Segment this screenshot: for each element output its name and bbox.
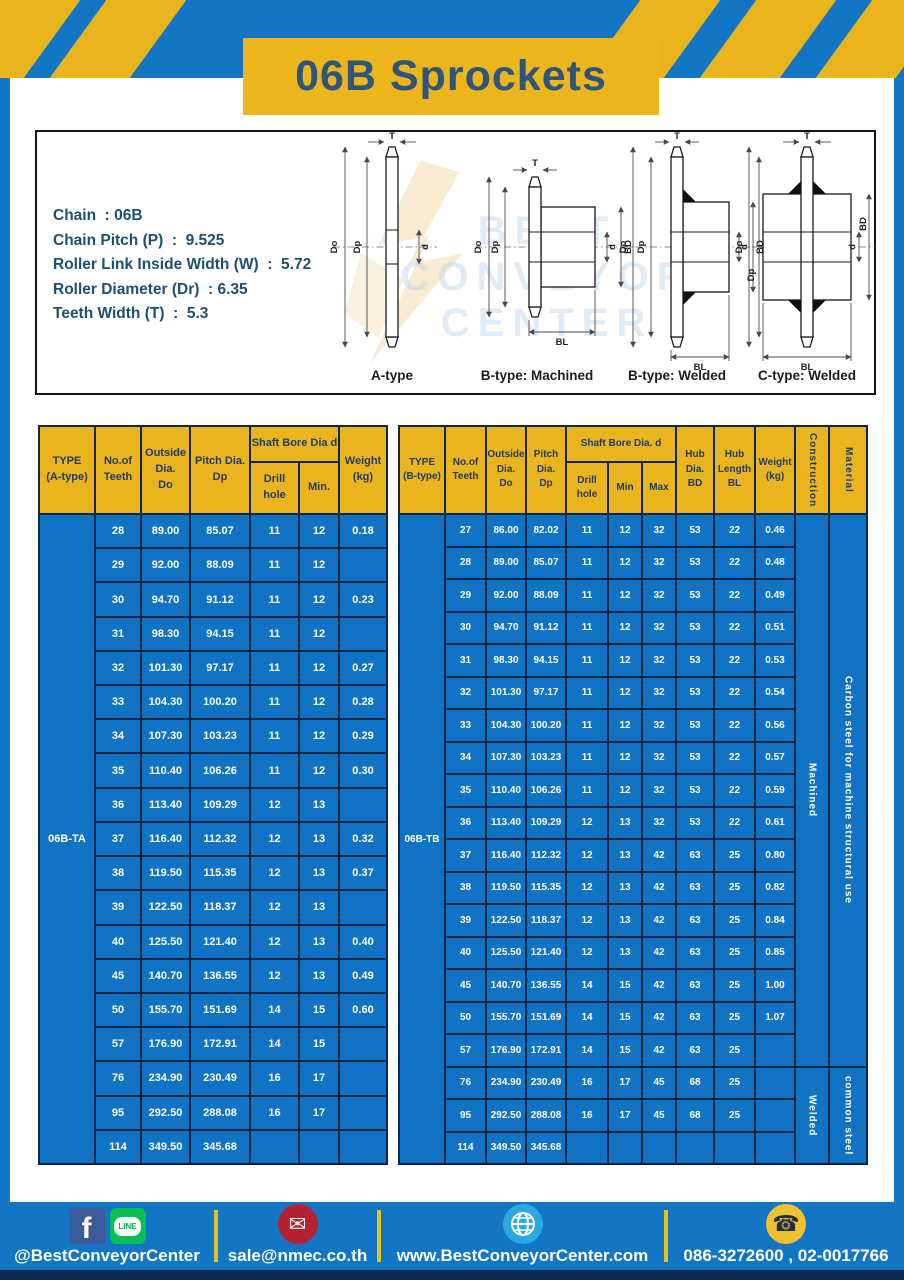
table-cell: 140.70 <box>142 960 189 992</box>
table-cell: 32 <box>643 710 675 741</box>
table-cell: 94.15 <box>191 618 249 650</box>
table-cell: 121.40 <box>527 938 565 969</box>
table-cell: 0.84 <box>756 905 794 936</box>
table-cell <box>340 1131 386 1163</box>
table-cell <box>340 1028 386 1060</box>
table-cell: 30 <box>446 613 485 644</box>
table-cell <box>340 618 386 650</box>
table-cell: 94.70 <box>487 613 525 644</box>
table-cell: 12 <box>609 710 641 741</box>
table-cell: 12 <box>251 789 298 821</box>
table-cell: 42 <box>643 1035 675 1066</box>
table-cell: 40 <box>446 938 485 969</box>
footer-phone-section[interactable]: ☎ 086-3272600 , 02-0017766 <box>668 1202 904 1270</box>
table-cell: 35 <box>96 754 140 786</box>
table-cell: 45 <box>446 970 485 1001</box>
table-cell: 15 <box>300 1028 338 1060</box>
table-cell: 14 <box>251 1028 298 1060</box>
column-header-outside-dia: Outside Dia. Do <box>487 427 525 513</box>
table-cell: 76 <box>446 1068 485 1099</box>
table-cell: 0.27 <box>340 652 386 684</box>
table-cell: 94.70 <box>142 583 189 615</box>
globe-icon[interactable] <box>503 1204 543 1244</box>
table-cell: 16 <box>251 1062 298 1094</box>
table-cell: 110.40 <box>487 775 525 806</box>
column-header-min: Min <box>609 463 641 513</box>
diagram-panel: BEST CONVEYOR CENTER Chain : 06B Chain P… <box>35 130 876 395</box>
table-cell: 45 <box>643 1100 675 1131</box>
column-header-pitch-dia: Pitch Dia. Dp <box>191 427 249 513</box>
table-cell: 63 <box>677 1035 713 1066</box>
dim-label-d: d <box>607 244 618 250</box>
table-cell: 11 <box>251 720 298 752</box>
table-cell: 11 <box>567 743 607 774</box>
table-cell: 53 <box>677 548 713 579</box>
table-cell: 0.46 <box>756 515 794 546</box>
table-cell: 0.53 <box>756 645 794 676</box>
table-cell: 22 <box>715 743 754 774</box>
table-cell: 0.37 <box>340 857 386 889</box>
table-cell: 101.30 <box>487 678 525 709</box>
social-handle-link[interactable]: @BestConveyorCenter <box>14 1246 200 1266</box>
table-cell: 11 <box>567 515 607 546</box>
globe-glyph <box>510 1211 536 1237</box>
table-cell: 11 <box>251 583 298 615</box>
table-cell: 12 <box>300 549 338 581</box>
table-cell: 13 <box>300 789 338 821</box>
table-cell: 11 <box>251 549 298 581</box>
table-cell: 349.50 <box>487 1133 525 1164</box>
table-cell: 32 <box>446 678 485 709</box>
table-cell: 32 <box>643 515 675 546</box>
column-header-hub-dia: Hub Dia. BD <box>677 427 713 513</box>
email-icon[interactable]: ✉ <box>278 1204 318 1244</box>
table-cell: 53 <box>677 515 713 546</box>
table-cell: 32 <box>643 743 675 774</box>
table-cell: 88.09 <box>527 580 565 611</box>
table-cell: 57 <box>96 1028 140 1060</box>
table-cell: 13 <box>300 891 338 923</box>
table-cell: 0.30 <box>340 754 386 786</box>
table-cell: 35 <box>446 775 485 806</box>
dim-label-t: T <box>532 158 538 169</box>
column-header-weight: Weight (kg) <box>756 427 794 513</box>
column-header-teeth: No.of Teeth <box>96 427 140 513</box>
table-cell <box>756 1133 794 1164</box>
table-cell: 14 <box>567 1003 607 1034</box>
column-header-type: TYPE (A-type) <box>40 427 94 513</box>
column-header-drill-hole: Drill hole <box>251 463 298 513</box>
table-cell: 15 <box>609 970 641 1001</box>
table-cell: 12 <box>567 905 607 936</box>
table-cell: 16 <box>251 1097 298 1129</box>
table-cell: 25 <box>715 938 754 969</box>
table-cell: 12 <box>300 515 338 547</box>
table-cell: 63 <box>677 840 713 871</box>
table-cell: 136.55 <box>191 960 249 992</box>
table-cell: 13 <box>609 808 641 839</box>
table-cell: 31 <box>446 645 485 676</box>
table-cell: 118.37 <box>191 891 249 923</box>
column-header-weight: Weight (kg) <box>340 427 386 513</box>
table-cell: 151.69 <box>527 1003 565 1034</box>
spec-sheet-page: { "title": "06B Sprockets", "specs": { "… <box>0 0 904 1280</box>
table-cell: 176.90 <box>142 1028 189 1060</box>
table-cell <box>609 1133 641 1164</box>
table-cell: 53 <box>677 775 713 806</box>
column-header-drill-hole: Drill hole <box>567 463 607 513</box>
table-cell: 29 <box>446 580 485 611</box>
table-cell: 50 <box>446 1003 485 1034</box>
table-cell: 45 <box>96 960 140 992</box>
sprocket-diagrams-svg: .pl { fill:#ffffff; stroke:#1a1a1a; stro… <box>37 132 878 397</box>
table-cell: 0.61 <box>756 808 794 839</box>
column-header-pitch-dia: Pitch Dia. Dp <box>527 427 565 513</box>
table-cell: 50 <box>96 994 140 1026</box>
table-cell: 176.90 <box>487 1035 525 1066</box>
column-header-max: Max <box>643 463 675 513</box>
table-cell <box>251 1131 298 1163</box>
table-cell: 11 <box>567 678 607 709</box>
table-cell: 11 <box>567 548 607 579</box>
table-cell: 0.57 <box>756 743 794 774</box>
table-cell: 11 <box>567 710 607 741</box>
table-cell: 31 <box>96 618 140 650</box>
bottom-navy-strip <box>0 1270 904 1280</box>
diagram-a-type: T Do Dp d <box>329 132 437 347</box>
table-cell: 98.30 <box>487 645 525 676</box>
table-cell: 68 <box>677 1068 713 1099</box>
table-cell: 36 <box>446 808 485 839</box>
construction-machined-cell: Machined <box>796 515 828 1066</box>
table-cell: 11 <box>251 515 298 547</box>
table-cell: 345.68 <box>191 1131 249 1163</box>
table-cell: 22 <box>715 710 754 741</box>
table-cell: 12 <box>300 652 338 684</box>
table-cell: 34 <box>446 743 485 774</box>
table-cell <box>715 1133 754 1164</box>
table-cell <box>340 789 386 821</box>
table-cell: 16 <box>567 1100 607 1131</box>
table-cell: 12 <box>300 583 338 615</box>
table-cell: 172.91 <box>527 1035 565 1066</box>
table-cell: 63 <box>677 938 713 969</box>
table-cell: 12 <box>251 857 298 889</box>
table-cell: 151.69 <box>191 994 249 1026</box>
table-cell: 230.49 <box>527 1068 565 1099</box>
dim-label-dp: Dp <box>636 240 647 253</box>
dim-label-dp: Dp <box>352 240 363 253</box>
column-header-construction: Construction <box>796 427 828 513</box>
table-cell: 13 <box>609 938 641 969</box>
table-cell: 53 <box>677 808 713 839</box>
table-cell: 11 <box>251 652 298 684</box>
table-cell: 25 <box>715 873 754 904</box>
table-cell: 121.40 <box>191 926 249 958</box>
table-cell <box>340 549 386 581</box>
table-cell: 119.50 <box>142 857 189 889</box>
table-cell: 12 <box>251 891 298 923</box>
line-app-icon[interactable]: LINE <box>110 1208 146 1244</box>
table-cell: 109.29 <box>191 789 249 821</box>
table-cell: 234.90 <box>487 1068 525 1099</box>
table-cell: 63 <box>677 873 713 904</box>
table-cell: 25 <box>715 840 754 871</box>
table-cell: 140.70 <box>487 970 525 1001</box>
email-link[interactable]: sale@nmec.co.th <box>228 1246 367 1266</box>
table-cell: 12 <box>609 645 641 676</box>
table-cell: 98.30 <box>142 618 189 650</box>
table-cell: 116.40 <box>142 823 189 855</box>
table-cell: 155.70 <box>142 994 189 1026</box>
table-cell: 13 <box>300 823 338 855</box>
table-cell: 40 <box>96 926 140 958</box>
table-cell: 115.35 <box>527 873 565 904</box>
table-cell: 349.50 <box>142 1131 189 1163</box>
table-cell: 0.49 <box>340 960 386 992</box>
stripe-decoration <box>692 0 843 78</box>
table-cell: 42 <box>643 970 675 1001</box>
diagram-caption-c-welded: C-type: Welded <box>722 368 892 383</box>
table-cell: 37 <box>446 840 485 871</box>
dim-label-bl: BL <box>556 337 569 348</box>
page-title: 06B Sprockets <box>295 52 607 101</box>
table-cell: 15 <box>609 1003 641 1034</box>
table-cell: 89.00 <box>142 515 189 547</box>
table-cell: 114 <box>96 1131 140 1163</box>
table-cell: 0.59 <box>756 775 794 806</box>
table-cell: 122.50 <box>487 905 525 936</box>
table-cell: 100.20 <box>191 686 249 718</box>
table-cell: 122.50 <box>142 891 189 923</box>
table-cell: 32 <box>643 645 675 676</box>
table-cell: 288.08 <box>191 1097 249 1129</box>
table-cell: 12 <box>567 840 607 871</box>
table-cell: 12 <box>567 938 607 969</box>
table-cell: 27 <box>446 515 485 546</box>
dim-label-do: Do <box>734 240 745 253</box>
table-cell: 155.70 <box>487 1003 525 1034</box>
table-cell: 25 <box>715 970 754 1001</box>
table-cell: 112.32 <box>191 823 249 855</box>
dim-label-dp: Dp <box>490 240 501 253</box>
table-cell: 13 <box>300 960 338 992</box>
table-cell: 12 <box>300 754 338 786</box>
table-cell: 11 <box>251 618 298 650</box>
table-cell <box>677 1133 713 1164</box>
column-header-material: Material <box>830 427 866 513</box>
table-cell: 32 <box>643 808 675 839</box>
dim-label-t: T <box>389 132 395 142</box>
table-cell: 76 <box>96 1062 140 1094</box>
table-cell: 42 <box>643 840 675 871</box>
table-cell: 0.80 <box>756 840 794 871</box>
table-cell: 11 <box>251 754 298 786</box>
table-cell: 13 <box>609 840 641 871</box>
facebook-glyph: f <box>82 1214 92 1244</box>
table-cell: 86.00 <box>487 515 525 546</box>
diagram-b-type-machined: T Do Dp d BD BL <box>473 158 635 348</box>
table-cell: 292.50 <box>487 1100 525 1131</box>
table-cell: 53 <box>677 743 713 774</box>
table-cell: 36 <box>96 789 140 821</box>
column-header-type: TYPE (B-type) <box>400 427 444 513</box>
table-cell: 0.28 <box>340 686 386 718</box>
table-cell: 25 <box>715 1068 754 1099</box>
table-cell: 94.15 <box>527 645 565 676</box>
table-cell <box>340 1062 386 1094</box>
table-cell: 15 <box>609 1035 641 1066</box>
table-cell: 12 <box>300 618 338 650</box>
table-cell: 22 <box>715 548 754 579</box>
table-cell: 22 <box>715 580 754 611</box>
table-cell: 39 <box>96 891 140 923</box>
table-cell: 22 <box>715 613 754 644</box>
social-icons: f LINE <box>69 1208 146 1244</box>
table-cell: 11 <box>251 686 298 718</box>
table-cell: 0.23 <box>340 583 386 615</box>
title-banner: 06B Sprockets <box>243 38 659 115</box>
table-cell: 95 <box>96 1097 140 1129</box>
table-cell: 22 <box>715 775 754 806</box>
dim-label-bd: BD <box>858 217 869 231</box>
column-header-min: Min. <box>300 463 338 513</box>
material-carbon-steel-cell: Carbon steel for machine structural use <box>830 515 866 1066</box>
table-cell: 12 <box>251 823 298 855</box>
table-cell: 113.40 <box>142 789 189 821</box>
table-cell: 12 <box>609 515 641 546</box>
table-cell: 13 <box>300 926 338 958</box>
table-cell: 39 <box>446 905 485 936</box>
table-cell <box>340 1097 386 1129</box>
table-cell: 42 <box>643 873 675 904</box>
table-cell: 37 <box>96 823 140 855</box>
table-cell: 0.40 <box>340 926 386 958</box>
table-cell: 14 <box>567 970 607 1001</box>
table-cell: 45 <box>643 1068 675 1099</box>
table-cell: 288.08 <box>527 1100 565 1131</box>
table-cell: 12 <box>609 678 641 709</box>
table-cell: 11 <box>567 580 607 611</box>
table-cell <box>756 1035 794 1066</box>
table-cell: 103.23 <box>191 720 249 752</box>
table-cell: 12 <box>300 720 338 752</box>
table-cell: 42 <box>643 905 675 936</box>
facebook-icon[interactable]: f <box>69 1208 105 1244</box>
table-cell: 107.30 <box>487 743 525 774</box>
table-cell: 12 <box>251 926 298 958</box>
table-cell: 125.50 <box>487 938 525 969</box>
table-cell: 32 <box>643 580 675 611</box>
table-a-type: TYPE (A-type) No.of Teeth Outside Dia. D… <box>38 425 388 1165</box>
table-cell: 89.00 <box>487 548 525 579</box>
table-cell: 14 <box>251 994 298 1026</box>
table-cell: 32 <box>643 548 675 579</box>
table-cell: 85.07 <box>191 515 249 547</box>
table-cell: 12 <box>251 960 298 992</box>
footer-email-section[interactable]: ✉ sale@nmec.co.th <box>218 1202 377 1270</box>
table-cell: 1.07 <box>756 1003 794 1034</box>
table-cell: 106.26 <box>191 754 249 786</box>
table-cell: 12 <box>609 580 641 611</box>
footer-website-section[interactable]: www.BestConveyorCenter.com <box>381 1202 664 1270</box>
table-cell: 345.68 <box>527 1133 565 1164</box>
table-cell: 28 <box>96 515 140 547</box>
phone-icon[interactable]: ☎ <box>766 1204 806 1244</box>
table-cell: 53 <box>677 710 713 741</box>
table-cell: 0.51 <box>756 613 794 644</box>
table-cell: 17 <box>609 1100 641 1131</box>
table-cell: 17 <box>300 1062 338 1094</box>
table-cell: 34 <box>96 720 140 752</box>
table-cell: 110.40 <box>142 754 189 786</box>
table-cell: 30 <box>96 583 140 615</box>
table-cell: 106.26 <box>527 775 565 806</box>
table-cell: 292.50 <box>142 1097 189 1129</box>
table-cell <box>340 891 386 923</box>
table-cell: 100.20 <box>527 710 565 741</box>
table-cell: 25 <box>715 905 754 936</box>
type-value-cell: 06B-TA <box>40 515 94 1163</box>
table-cell <box>756 1068 794 1099</box>
dim-label-t: T <box>674 132 680 142</box>
table-cell <box>300 1131 338 1163</box>
table-cell: 101.30 <box>142 652 189 684</box>
table-cell: 63 <box>677 1003 713 1034</box>
construction-welded-cell: Welded <box>796 1068 828 1164</box>
table-cell: 22 <box>715 645 754 676</box>
table-cell: 15 <box>300 994 338 1026</box>
footer-contact-bar: f LINE @BestConveyorCenter ✉ sale@nmec.c… <box>0 1202 904 1270</box>
dim-label-d: d <box>847 244 858 250</box>
table-cell: 97.17 <box>191 652 249 684</box>
table-cell: 32 <box>643 678 675 709</box>
table-cell: 119.50 <box>487 873 525 904</box>
table-cell: 0.18 <box>340 515 386 547</box>
table-cell: 25 <box>715 1100 754 1131</box>
dim-label-do: Do <box>473 240 484 253</box>
table-cell: 88.09 <box>191 549 249 581</box>
table-cell: 114 <box>446 1133 485 1164</box>
table-cell <box>567 1133 607 1164</box>
footer-social-section[interactable]: f LINE @BestConveyorCenter <box>0 1202 214 1270</box>
website-link[interactable]: www.BestConveyorCenter.com <box>397 1246 649 1266</box>
table-cell: 0.56 <box>756 710 794 741</box>
table-cell: 42 <box>643 1003 675 1034</box>
table-cell: 53 <box>677 645 713 676</box>
table-cell: 22 <box>715 515 754 546</box>
table-cell: 53 <box>677 580 713 611</box>
table-cell: 63 <box>677 970 713 1001</box>
table-cell: 32 <box>96 652 140 684</box>
table-cell: 0.54 <box>756 678 794 709</box>
table-cell: 97.17 <box>527 678 565 709</box>
phone-numbers[interactable]: 086-3272600 , 02-0017766 <box>683 1246 888 1266</box>
dim-label-dp: Dp <box>746 268 757 281</box>
material-common-steel-cell: common steel <box>830 1068 866 1164</box>
table-cell: 63 <box>677 905 713 936</box>
table-cell: 13 <box>609 873 641 904</box>
dim-label-t: T <box>804 132 810 142</box>
table-cell: 12 <box>609 743 641 774</box>
table-cell: 230.49 <box>191 1062 249 1094</box>
table-cell: 92.00 <box>142 549 189 581</box>
table-cell: 0.48 <box>756 548 794 579</box>
column-header-outside-dia: Outside Dia. Do <box>142 427 189 513</box>
table-b-type: TYPE (B-type) No.of Teeth Outside Dia. D… <box>398 425 868 1165</box>
table-cell: 11 <box>567 775 607 806</box>
table-cell: 11 <box>567 645 607 676</box>
